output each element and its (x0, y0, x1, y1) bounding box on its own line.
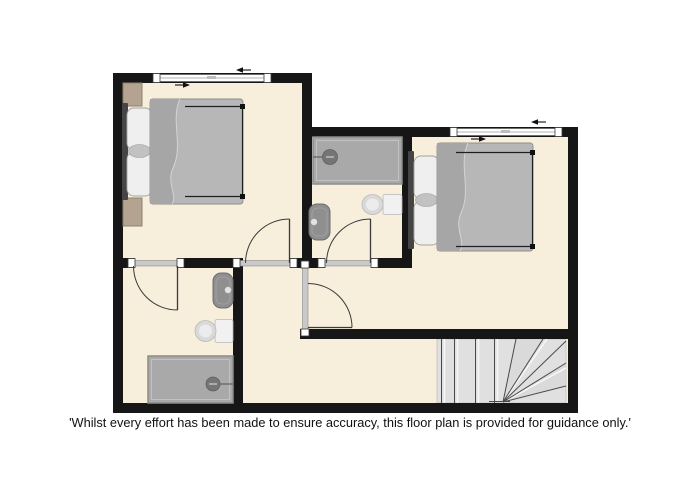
window-bedroom2 (450, 128, 562, 137)
door-jamb (318, 259, 325, 268)
bedroom2-furniture (408, 143, 535, 251)
bed-frame-dot (240, 104, 245, 109)
threshold-bathroom1-door (325, 261, 371, 267)
threshold-bedroom1-door (240, 261, 290, 267)
toilet-seat (199, 325, 212, 338)
window-jamb (264, 74, 271, 83)
disclaimer-text: 'Whilst every effort has been made to en… (0, 415, 700, 430)
shower-tray-2 (148, 356, 233, 403)
staircase (437, 339, 566, 403)
pillow (127, 152, 152, 196)
arrow-left-icon (236, 67, 251, 72)
door-jamb (371, 259, 378, 268)
nightstand (123, 198, 142, 226)
shower-tray-1 (313, 137, 402, 184)
pillow (414, 156, 439, 199)
pillow (414, 201, 439, 245)
headboard (408, 151, 414, 249)
pillow (127, 108, 152, 150)
window-jamb (555, 128, 562, 137)
bed-frame-dot (240, 194, 245, 199)
stairs-base (437, 339, 566, 403)
toilet-cistern (383, 195, 402, 215)
toilet-cistern (215, 320, 233, 343)
wall-bathroom2-right (233, 258, 243, 413)
window-bedroom1 (153, 74, 271, 83)
wall-outer-right (568, 127, 578, 413)
window-center-tick (207, 76, 216, 79)
sink-2 (213, 273, 233, 308)
window-jamb (450, 128, 457, 137)
wall-outer-bottom (113, 403, 578, 413)
sink-faucet-icon (225, 287, 232, 294)
door-jamb (301, 329, 309, 336)
bed-2 (408, 143, 535, 251)
bed-frame-dot (530, 244, 535, 249)
wall-bedroom1-right (302, 73, 312, 268)
arrow-left-icon (531, 119, 546, 124)
window-jamb (153, 74, 160, 83)
sink-faucet-icon (311, 219, 318, 226)
wall-outer-left (113, 73, 123, 413)
pillow-crease (129, 145, 151, 158)
door-jamb (301, 261, 309, 268)
sink-1 (309, 204, 330, 240)
floor-plan-page: 'Whilst every effort has been made to en… (0, 0, 700, 500)
wall-above-stairs (300, 329, 578, 339)
door-jamb (233, 259, 240, 268)
bed-1 (122, 99, 245, 204)
toilet-seat (366, 199, 379, 211)
window-center-tick (501, 130, 510, 133)
door-jamb (290, 259, 297, 268)
nightstand (123, 83, 142, 106)
wall-mid-segment-b (177, 258, 240, 268)
shower-tray (148, 356, 233, 403)
pillow-crease (416, 194, 438, 207)
threshold-bedroom2-door (303, 268, 309, 329)
threshold-bathroom2-door (135, 261, 177, 267)
bed-frame-dot (530, 150, 535, 155)
